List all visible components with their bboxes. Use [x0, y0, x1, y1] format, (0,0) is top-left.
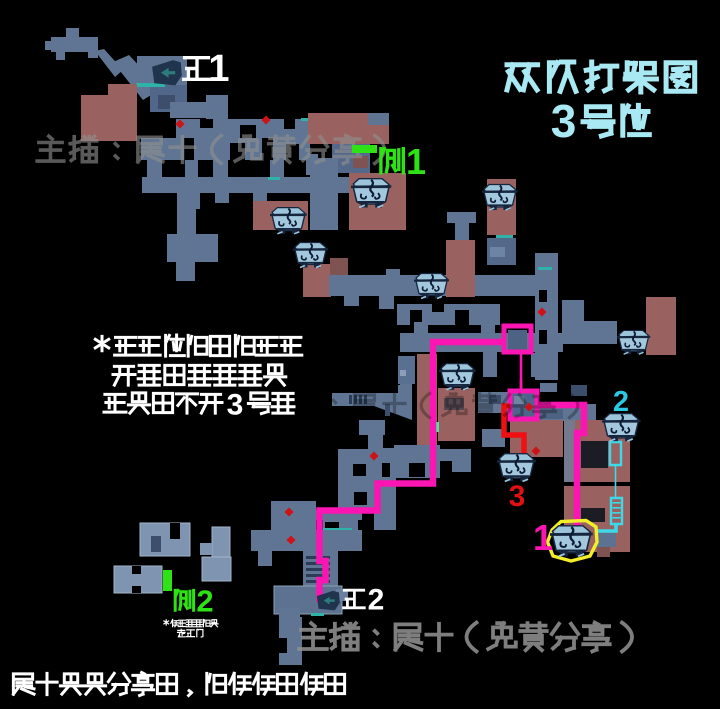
svg-text:3: 3	[551, 95, 577, 147]
svg-text:2: 2	[368, 583, 385, 616]
svg-text:3: 3	[509, 480, 526, 513]
svg-text:3: 3	[227, 388, 244, 421]
svg-text:2: 2	[196, 583, 213, 618]
svg-text:1: 1	[406, 141, 426, 182]
svg-text:2: 2	[613, 386, 629, 418]
svg-text:1: 1	[208, 48, 229, 90]
svg-text:1: 1	[533, 517, 553, 558]
